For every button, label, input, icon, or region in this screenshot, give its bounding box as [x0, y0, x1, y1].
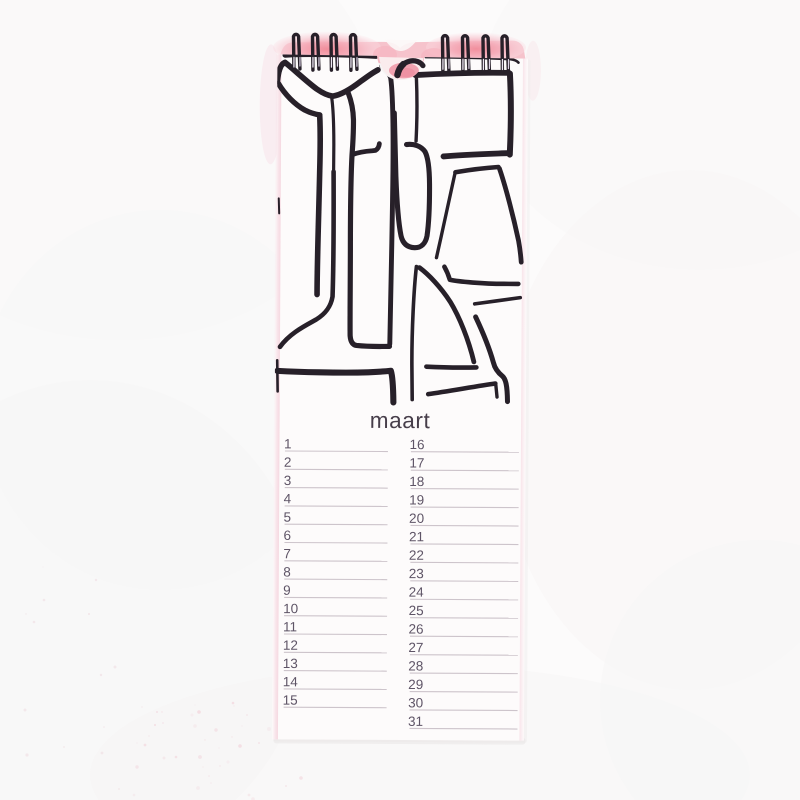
svg-text:17: 17 — [409, 455, 424, 470]
svg-text:10: 10 — [283, 601, 298, 616]
svg-text:16: 16 — [409, 437, 424, 452]
svg-text:18: 18 — [409, 474, 424, 489]
svg-text:8: 8 — [283, 564, 291, 579]
svg-text:5: 5 — [284, 510, 292, 525]
svg-text:2: 2 — [284, 455, 292, 470]
svg-text:9: 9 — [283, 583, 291, 598]
svg-text:20: 20 — [409, 511, 424, 526]
svg-text:3: 3 — [284, 473, 292, 488]
svg-text:6: 6 — [283, 528, 291, 543]
svg-text:31: 31 — [408, 714, 423, 729]
svg-text:24: 24 — [409, 585, 425, 600]
svg-text:25: 25 — [409, 603, 424, 618]
svg-text:19: 19 — [409, 492, 424, 507]
svg-text:14: 14 — [283, 674, 299, 689]
svg-text:26: 26 — [408, 622, 423, 637]
svg-text:15: 15 — [283, 693, 298, 708]
svg-text:7: 7 — [283, 546, 291, 561]
svg-text:1: 1 — [284, 436, 292, 451]
svg-text:12: 12 — [283, 638, 298, 653]
svg-text:23: 23 — [409, 566, 424, 581]
svg-text:28: 28 — [408, 658, 423, 673]
svg-text:29: 29 — [408, 677, 423, 692]
svg-text:maart: maart — [370, 408, 431, 433]
svg-text:30: 30 — [408, 695, 423, 710]
svg-text:22: 22 — [409, 548, 424, 563]
svg-text:13: 13 — [283, 656, 298, 671]
svg-text:21: 21 — [409, 529, 424, 544]
svg-text:27: 27 — [408, 640, 423, 655]
svg-text:4: 4 — [284, 491, 292, 506]
svg-text:11: 11 — [283, 619, 297, 634]
